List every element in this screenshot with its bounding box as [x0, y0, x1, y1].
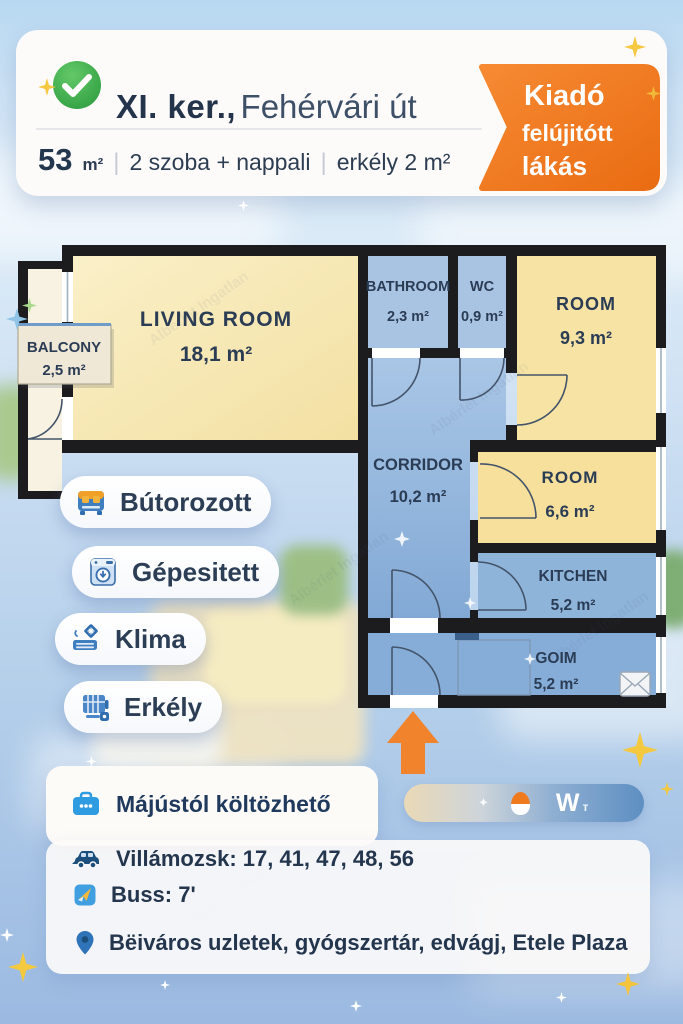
- brand-letter: W: [556, 789, 581, 818]
- district-text: XI. ker.,: [116, 88, 236, 125]
- rooms-text: 2 szoba + nappali: [130, 149, 311, 176]
- feature-label: Gépesitett: [132, 557, 259, 588]
- bus-icon: [73, 883, 97, 907]
- tram-icon: [72, 847, 102, 871]
- move-in-text: Májústól költözhető: [116, 791, 331, 818]
- room-front-label: ROOM: [542, 468, 599, 487]
- sparkle-icon: [616, 972, 640, 996]
- goim-label: GOIM: [535, 650, 576, 667]
- room-goim: [368, 633, 656, 695]
- room-wc: [458, 256, 506, 353]
- sparkle-icon: [238, 200, 249, 211]
- location-text: Bëiváros uzletek, gyógszertár, edvágj, E…: [109, 930, 627, 956]
- plane-sparkle-icon: ✦: [478, 795, 489, 811]
- mail-icon: [620, 672, 650, 696]
- room-bathroom: [368, 256, 448, 353]
- feature-pill-furnished: Bútorozott: [60, 476, 271, 528]
- sparkle-icon: [556, 992, 567, 1003]
- balcony-label: BALCONY: [27, 339, 101, 356]
- room-front: [478, 452, 656, 543]
- bus-text: Buss: 7': [111, 882, 196, 908]
- goim-area: 5,2 m²: [534, 676, 579, 693]
- balcony-text: erkély 2 m²: [337, 149, 451, 176]
- kitchen-area: 5,2 m²: [551, 597, 596, 614]
- feature-pill-balcony: Erkély: [64, 681, 222, 733]
- tram-text: Villámozsk: 17, 41, 47, 48, 56: [116, 846, 414, 872]
- feature-pill-appliances: Gépesitett: [72, 546, 279, 598]
- feature-label: Erkély: [124, 692, 202, 723]
- ribbon-badge: Kiadó felújitótt lákás: [468, 58, 673, 198]
- verified-check-icon: [52, 60, 102, 110]
- living-room-area: 18,1 m²: [180, 343, 252, 366]
- page-title: XI. ker., Fehérvári út: [116, 88, 417, 126]
- bathroom-area: 2,3 m²: [387, 309, 429, 325]
- listing-stats: 53 m² | 2 szoba + nappali | erkély 2 m²: [38, 142, 450, 178]
- brand-logo-pill: ✦ W т: [404, 784, 644, 822]
- separator: |: [113, 149, 119, 177]
- sparkle-icon: [8, 952, 38, 982]
- street-text: Fehérvári út: [241, 88, 417, 125]
- room-back-area: 9,3 m²: [560, 328, 612, 348]
- ribbon-line3: lákás: [522, 151, 587, 181]
- furniture-icon: [74, 485, 108, 519]
- feature-label: Bútorozott: [120, 487, 251, 518]
- wc-area: 0,9 m²: [461, 309, 503, 325]
- bathroom-label: BATHROOM: [366, 279, 450, 295]
- size-unit: m²: [82, 155, 103, 175]
- room-back: [517, 256, 656, 440]
- ribbon-line1: Kiadó: [524, 80, 605, 112]
- counter-bar: [455, 633, 479, 640]
- sparkle-icon: [350, 1000, 362, 1012]
- kitchen-label: KITCHEN: [539, 568, 608, 585]
- living-room-label: LIVING ROOM: [140, 308, 292, 331]
- room-back-label: ROOM: [556, 294, 616, 314]
- divider: [36, 128, 482, 130]
- size-value: 53: [38, 142, 72, 178]
- corridor-label: CORRIDOR: [373, 456, 463, 474]
- ribbon-line2: felújitótt: [522, 120, 613, 146]
- move-in-card: Májústól költözhető: [46, 766, 378, 846]
- wc-label: WC: [470, 279, 495, 295]
- corridor-area: 10,2 m²: [390, 488, 447, 506]
- washing-machine-icon: [86, 555, 120, 589]
- sparkle-icon: [160, 980, 170, 990]
- transport-location-card: Villámozsk: 17, 41, 47, 48, 56 Buss: 7' …: [46, 840, 650, 974]
- room-front-area: 6,6 m²: [545, 502, 594, 521]
- balcony-railing-icon: [78, 690, 112, 724]
- balcony-area: 2,5 m²: [42, 362, 85, 379]
- sparkle-icon: [0, 928, 14, 942]
- separator: |: [320, 149, 326, 177]
- entrance-arrow-icon: [387, 711, 439, 774]
- brand-letter-suffix: т: [583, 800, 589, 814]
- briefcase-icon: [70, 790, 102, 818]
- air-conditioner-icon: [69, 622, 103, 656]
- brand-shield-icon: [511, 792, 530, 815]
- location-pin-icon: [75, 930, 95, 956]
- feature-label: Klima: [115, 624, 186, 655]
- feature-pill-ac: Klima: [55, 613, 206, 665]
